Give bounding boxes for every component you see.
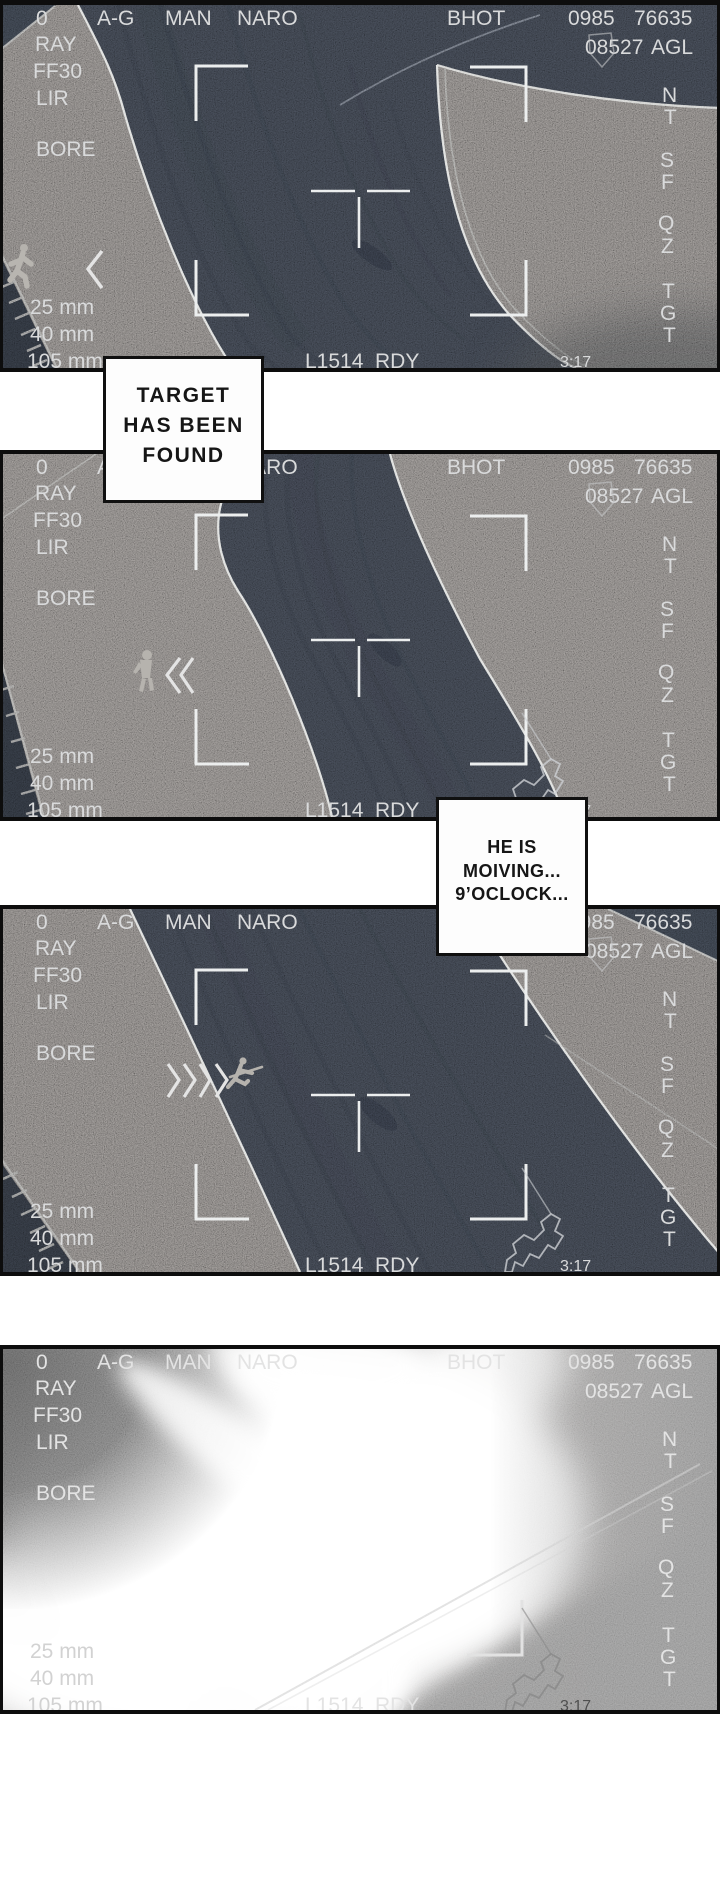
svg-text:L1514: L1514 <box>305 1694 364 1710</box>
svg-text:LIR: LIR <box>36 991 69 1014</box>
svg-text:S: S <box>660 1493 674 1516</box>
svg-text:S: S <box>660 598 674 621</box>
svg-text:25 mm: 25 mm <box>30 1200 94 1223</box>
svg-text:0985: 0985 <box>568 456 615 479</box>
svg-text:FF30: FF30 <box>33 509 82 532</box>
svg-text:08527: 08527 <box>585 36 643 59</box>
svg-text:NARO: NARO <box>237 911 298 934</box>
svg-text:F: F <box>661 1515 674 1538</box>
svg-text:BORE: BORE <box>36 138 96 161</box>
svg-text:76635: 76635 <box>634 911 692 934</box>
svg-text:105 mm: 105 mm <box>27 799 103 817</box>
svg-text:105 mm: 105 mm <box>27 1694 103 1710</box>
svg-text:N: N <box>662 1428 677 1451</box>
svg-text:LIR: LIR <box>36 87 69 110</box>
svg-text:Z: Z <box>661 684 674 707</box>
svg-text:0985: 0985 <box>568 1351 615 1374</box>
svg-text:T: T <box>662 280 675 303</box>
svg-text:L1514: L1514 <box>305 350 364 368</box>
svg-text:T: T <box>663 324 676 347</box>
svg-text:G: G <box>660 302 676 325</box>
svg-text:T: T <box>664 1010 677 1033</box>
svg-text:G: G <box>660 1206 676 1229</box>
svg-text:N: N <box>662 84 677 107</box>
svg-text:RAY: RAY <box>35 1377 77 1400</box>
svg-text:BHOT: BHOT <box>447 456 506 479</box>
svg-text:T: T <box>663 1228 676 1251</box>
svg-text:T: T <box>662 1624 675 1647</box>
svg-text:0: 0 <box>36 911 48 934</box>
svg-text:3:17: 3:17 <box>560 1698 591 1710</box>
svg-text:T: T <box>662 729 675 752</box>
svg-text:RAY: RAY <box>35 33 77 56</box>
svg-text:F: F <box>661 171 674 194</box>
svg-text:AGL: AGL <box>651 36 693 59</box>
svg-text:Z: Z <box>661 235 674 258</box>
svg-text:F: F <box>661 1075 674 1098</box>
svg-text:RAY: RAY <box>35 482 77 505</box>
svg-text:0: 0 <box>36 7 48 30</box>
svg-text:FF30: FF30 <box>33 1404 82 1427</box>
svg-text:A-G: A-G <box>97 7 134 30</box>
svg-text:40 mm: 40 mm <box>30 1227 94 1250</box>
svg-text:AGL: AGL <box>651 485 693 508</box>
svg-text:105 mm: 105 mm <box>27 350 103 368</box>
svg-text:RDY: RDY <box>375 799 419 817</box>
svg-text:N: N <box>662 988 677 1011</box>
svg-text:BORE: BORE <box>36 587 96 610</box>
svg-text:40 mm: 40 mm <box>30 323 94 346</box>
svg-text:S: S <box>660 149 674 172</box>
svg-text:0: 0 <box>36 456 48 479</box>
svg-text:T: T <box>662 1184 675 1207</box>
svg-text:40 mm: 40 mm <box>30 1667 94 1690</box>
svg-text:AGL: AGL <box>651 940 693 963</box>
svg-text:3:17: 3:17 <box>560 1258 591 1272</box>
svg-text:T: T <box>663 773 676 796</box>
svg-text:L1514: L1514 <box>305 799 364 817</box>
svg-text:RDY: RDY <box>375 350 419 368</box>
svg-text:Q: Q <box>658 1556 674 1579</box>
svg-text:0: 0 <box>36 1351 48 1374</box>
svg-text:Z: Z <box>661 1139 674 1162</box>
svg-text:MAN: MAN <box>165 911 212 934</box>
svg-text:25 mm: 25 mm <box>30 745 94 768</box>
svg-text:25 mm: 25 mm <box>30 296 94 319</box>
svg-text:MAN: MAN <box>165 1351 212 1374</box>
svg-text:BHOT: BHOT <box>447 1351 506 1374</box>
svg-text:AGL: AGL <box>651 1380 693 1403</box>
svg-text:08527: 08527 <box>585 940 643 963</box>
svg-text:Q: Q <box>658 1116 674 1139</box>
svg-text:G: G <box>660 751 676 774</box>
svg-text:G: G <box>660 1646 676 1669</box>
svg-text:Z: Z <box>661 1579 674 1602</box>
svg-text:Q: Q <box>658 212 674 235</box>
svg-text:T: T <box>664 1450 677 1473</box>
svg-text:Q: Q <box>658 661 674 684</box>
svg-text:MAN: MAN <box>165 7 212 30</box>
svg-text:76635: 76635 <box>634 1351 692 1374</box>
svg-text:T: T <box>664 555 677 578</box>
svg-text:LIR: LIR <box>36 1431 69 1454</box>
svg-text:LIR: LIR <box>36 536 69 559</box>
svg-text:L1514: L1514 <box>305 1254 364 1272</box>
svg-text:BORE: BORE <box>36 1042 96 1065</box>
svg-text:FF30: FF30 <box>33 60 82 83</box>
svg-text:NARO: NARO <box>237 7 298 30</box>
svg-text:S: S <box>660 1053 674 1076</box>
svg-text:N: N <box>662 533 677 556</box>
svg-text:105 mm: 105 mm <box>27 1254 103 1272</box>
svg-text:RDY: RDY <box>375 1694 419 1710</box>
svg-text:40 mm: 40 mm <box>30 772 94 795</box>
svg-text:NARO: NARO <box>237 1351 298 1374</box>
svg-text:A-G: A-G <box>97 1351 134 1374</box>
svg-text:76635: 76635 <box>634 456 692 479</box>
svg-text:F: F <box>661 620 674 643</box>
svg-text:RDY: RDY <box>375 1254 419 1272</box>
svg-text:RAY: RAY <box>35 937 77 960</box>
svg-text:BORE: BORE <box>36 1482 96 1505</box>
svg-text:A-G: A-G <box>97 911 134 934</box>
svg-text:76635: 76635 <box>634 7 692 30</box>
svg-text:T: T <box>664 106 677 129</box>
svg-text:08527: 08527 <box>585 485 643 508</box>
svg-text:3:17: 3:17 <box>560 354 591 368</box>
svg-text:FF30: FF30 <box>33 964 82 987</box>
svg-text:25 mm: 25 mm <box>30 1640 94 1663</box>
svg-text:BHOT: BHOT <box>447 7 506 30</box>
svg-text:T: T <box>663 1668 676 1691</box>
svg-text:08527: 08527 <box>585 1380 643 1403</box>
svg-text:0985: 0985 <box>568 7 615 30</box>
